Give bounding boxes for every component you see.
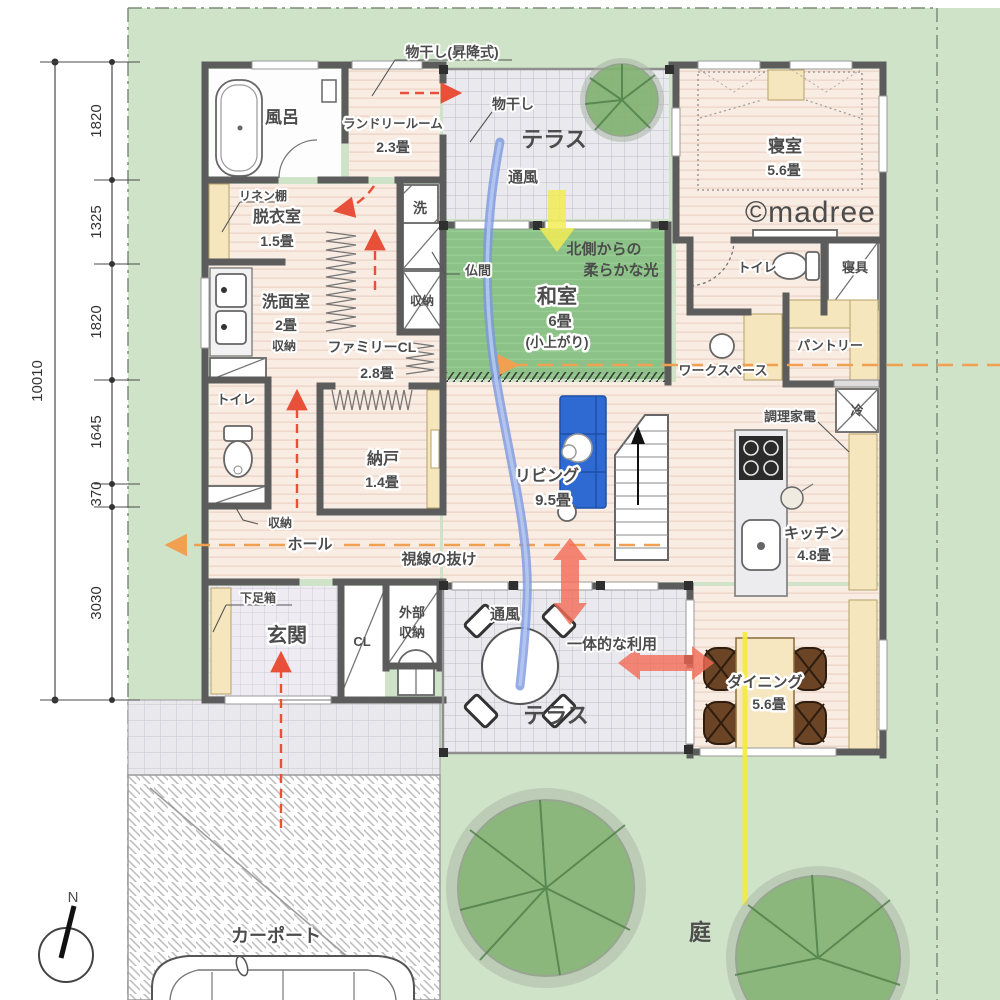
dim-seg-1: 1820 xyxy=(88,104,105,137)
bed-pillow xyxy=(768,70,804,100)
label-laundry-size: 2.3畳 xyxy=(376,139,409,155)
label-bath: 風呂 xyxy=(265,108,299,127)
label-family-closet-size: 2.8畳 xyxy=(360,365,393,381)
label-terrace-north: テラス xyxy=(521,127,587,152)
window-terrace-dining-2 xyxy=(686,668,694,744)
toilet-hall-bowl xyxy=(224,441,252,477)
label-toilet-bedroom: トイレ xyxy=(737,260,776,275)
storeroom-cabinet-door xyxy=(431,430,439,468)
dim-total-label: 10010 xyxy=(29,360,46,402)
dim-seg-4: 1645 xyxy=(88,415,105,448)
car xyxy=(152,955,414,1000)
label-airflow-north: 通風 xyxy=(508,169,538,186)
label-north-light-2: 柔らかな光 xyxy=(583,261,658,279)
label-butsuma: 仏間 xyxy=(465,263,491,278)
pantry-louver xyxy=(834,380,879,387)
label-fridge: 冷 xyxy=(850,403,863,418)
label-washroom: 洗面室 xyxy=(262,292,310,311)
post-living-w xyxy=(439,581,448,590)
window-laundry xyxy=(352,61,422,69)
toilet-bedroom-bowl xyxy=(773,253,807,279)
label-bedroom: 寝室 xyxy=(768,136,802,156)
faucet-1 xyxy=(221,287,227,293)
post-living-m2 xyxy=(596,581,605,590)
label-bedding-closet: 寝具 xyxy=(842,260,868,275)
window-bedroom-1 xyxy=(698,61,760,69)
label-hall: ホール xyxy=(287,536,332,553)
compass-north-label: N xyxy=(68,889,79,906)
label-living-size: 9.5畳 xyxy=(535,492,571,509)
label-kitchen-size: 4.8畳 xyxy=(797,547,830,563)
label-living: リビング xyxy=(515,466,579,485)
label-storage-a: 収納 xyxy=(410,293,434,308)
label-integrated-use: 一体的な利用 xyxy=(567,635,657,653)
label-dressing-size: 1.5畳 xyxy=(260,233,293,249)
label-washer: 洗 xyxy=(413,200,427,216)
post-dining-s xyxy=(684,745,693,754)
label-terrace-south: テラス xyxy=(523,703,589,728)
label-closet: CL xyxy=(353,634,370,649)
faucet-2 xyxy=(221,324,227,330)
kitchen-faucet xyxy=(757,542,765,550)
label-cooking-appliances: 調理家電 xyxy=(764,409,816,424)
label-toilet-hall: トイレ xyxy=(216,392,255,407)
appliance-counter xyxy=(849,434,877,590)
sink-2 xyxy=(216,311,246,344)
label-storeroom: 納戸 xyxy=(367,449,399,468)
window-living-1 xyxy=(452,582,508,590)
label-ext-storage-1: 外部 xyxy=(398,605,425,620)
floor-plan-svg: N 10010 1820 1325 1820 1645 370 3030 xyxy=(0,0,1000,1000)
toilet-hall-tank xyxy=(224,426,252,441)
label-laundry: ランドリールーム xyxy=(343,117,443,131)
window-living-3 xyxy=(604,582,658,590)
washitsu-step-edge xyxy=(443,372,668,382)
watermark: ©madree xyxy=(745,196,876,229)
bathtub-drain xyxy=(238,126,243,131)
post-terrace-ne xyxy=(665,65,674,74)
label-garden: 庭 xyxy=(689,920,711,945)
label-storage-b: 収納 xyxy=(272,338,296,353)
label-drying-lift: 物干し(昇降式) xyxy=(405,44,498,60)
label-washroom-size: 2畳 xyxy=(275,317,297,333)
label-ext-storage-2: 収納 xyxy=(399,625,425,640)
tree-south-center xyxy=(446,788,646,988)
window-dining-east xyxy=(879,640,887,730)
window-bedroom-2 xyxy=(790,61,852,69)
dining-sideboard xyxy=(849,600,877,750)
window-dining-south xyxy=(700,748,836,756)
label-washitsu: 和室 xyxy=(537,284,577,308)
label-dining-size: 5.6畳 xyxy=(752,696,785,712)
label-storeroom-size: 1.4畳 xyxy=(365,474,398,490)
window-bedroom-east xyxy=(879,96,887,172)
label-carport: カーポート xyxy=(231,925,321,946)
window-washroom xyxy=(201,278,209,348)
floor-plan-page: N 10010 1820 1325 1820 1645 370 3030 xyxy=(0,0,1000,1000)
label-storage-c: 収納 xyxy=(268,515,292,530)
tree-north xyxy=(580,58,664,142)
workspace-stool xyxy=(710,334,734,358)
dim-seg-5: 370 xyxy=(88,481,105,506)
label-drying: 物干し xyxy=(492,96,534,112)
dim-seg-6: 3030 xyxy=(88,586,105,619)
label-dressing: 脱衣室 xyxy=(253,207,301,226)
label-dining: ダイニング xyxy=(727,673,802,691)
post-living-m1 xyxy=(509,581,518,590)
post-terrace-nw xyxy=(439,65,448,74)
post-living-e xyxy=(684,581,693,590)
label-workspace: ワークスペース xyxy=(678,363,767,378)
label-washitsu-note: (小上がり) xyxy=(526,334,589,350)
shower-panel xyxy=(322,80,336,102)
person-head xyxy=(562,445,576,459)
window-bath xyxy=(252,61,318,69)
label-pantry: パントリー xyxy=(797,338,863,353)
toilet-bedroom-tank xyxy=(806,252,819,280)
post-washitsu-w xyxy=(439,221,448,230)
label-north-light-1: 北側からの xyxy=(566,240,641,258)
label-family-closet: ファミリーCL xyxy=(328,339,417,355)
window-bedroom-west xyxy=(672,108,680,156)
label-washitsu-size: 6畳 xyxy=(548,313,571,330)
label-shoe-box: 下足箱 xyxy=(240,590,276,605)
post-washitsu-e xyxy=(659,221,668,230)
shoe-cabinet xyxy=(211,588,231,694)
label-kitchen: キッチン xyxy=(784,525,844,542)
label-bedroom-size: 5.6畳 xyxy=(767,162,800,178)
approach-porch xyxy=(128,700,440,775)
sink-1 xyxy=(216,274,246,307)
post-terrace-sw xyxy=(439,748,448,757)
linen-cabinet xyxy=(209,184,229,262)
dim-seg-3: 1820 xyxy=(88,305,105,338)
dim-seg-2: 1325 xyxy=(88,205,105,238)
label-airflow-south: 通風 xyxy=(490,606,520,623)
label-entrance: 玄関 xyxy=(267,623,307,647)
pot xyxy=(781,487,803,509)
label-linen-shelf: リネン棚 xyxy=(239,188,287,203)
label-sightline: 視線の抜け xyxy=(400,550,476,568)
